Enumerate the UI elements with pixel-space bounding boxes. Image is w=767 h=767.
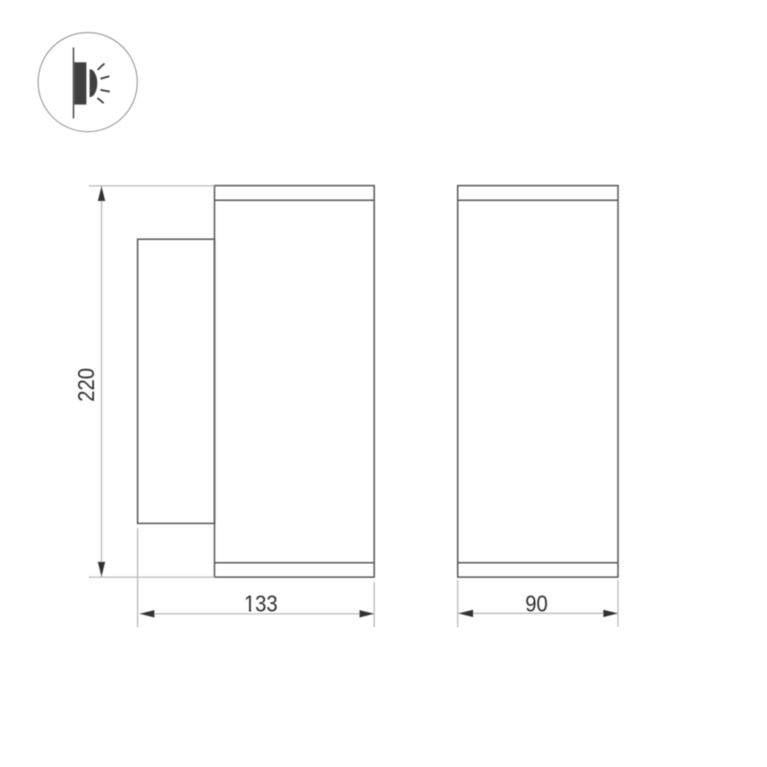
svg-text:220: 220 bbox=[72, 368, 99, 402]
svg-text:90: 90 bbox=[525, 590, 547, 617]
svg-text:133: 133 bbox=[244, 590, 278, 617]
